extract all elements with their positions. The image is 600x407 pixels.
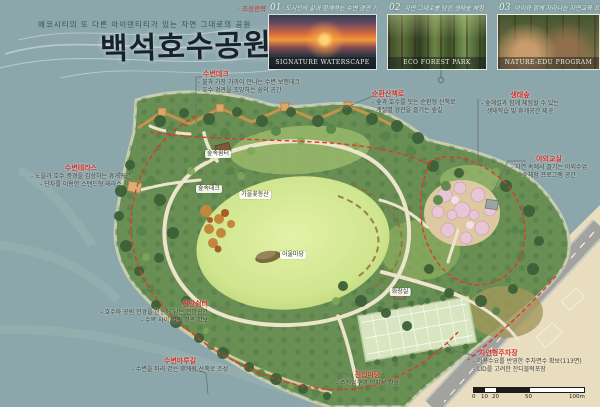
photo3-caption: NATURE-EDU PROGRAM — [498, 57, 599, 69]
callout-eco-forest: 생태숲 - 숲해설과 함께 체험할 수 있는 생태학습 및 휴게공간 제공 — [468, 91, 572, 115]
park-masterplan-poster: 에코시티의 또 다른 아이덴티티가 있는 자연 그대로의 공원 백석호수공원 ·… — [0, 0, 600, 407]
callout-entry-plaza: 진입마당 - 주진입구역 인지성 강화 — [325, 371, 410, 388]
callout-outdoor-class: 야외교실 - 자연 속에서 즐기는 야외수업 숲체험 프로그램 공간 — [505, 155, 593, 179]
label-oul-madang: 어울마당 — [280, 251, 306, 259]
callout-waterside-deck: 수변데크 - 물과 가장 가까이 만나는 수변 보행데크 - 호수 경관을 조망… — [198, 70, 328, 94]
label-forest-deck: 숲속데크 — [196, 185, 222, 193]
photo2-caption: ECO FOREST PARK — [388, 57, 486, 69]
callout-waterside-maru: 수변마루길 - 수변을 따라 걷는 휴게형 산책로 조성 — [120, 357, 240, 374]
label-toilet: 화장실 — [390, 288, 411, 296]
photo-eco-forest-park: ECO FOREST PARK — [387, 14, 487, 70]
photo-nature-edu-program: NATURE-EDU PROGRAM — [497, 14, 600, 70]
page-title: 백석호수공원 — [99, 20, 272, 68]
photo2-heading: 02 자연 그대로를 담은 생태숲 체험 공간 — [389, 3, 487, 13]
outdoor-class-pavilion — [485, 199, 498, 210]
callout-view-rest: 전망쉼터 - 호수와 공원 전경을 한눈에 담는 전망공간 - 수목 사이 열린… — [40, 300, 208, 324]
callout-loop-trail: 순환산책로 - 숲과 호수를 잇는 순환형 산책로 - 계절별 경관을 즐기는 … — [372, 90, 467, 114]
callout-waterside-terrace: 수변테라스 - 노을과 호수 풍경을 감상하는 휴게공간 - 단차를 이용한 스… — [22, 164, 140, 188]
photo-signature-waterscape: SIGNATURE WATERSCAPE — [268, 14, 377, 70]
label-forest-rest: 숲속쉼터 — [205, 150, 231, 158]
photo1-heading: 01 도시민의 삶과 함께하는 수변 경관 거점 — [270, 3, 377, 13]
cherry-blossom-garden — [424, 180, 500, 246]
callout-natural-parking: 자연형주차장 - 이용수요를 반영한 주차면수 확보(113면) - LID를 … — [473, 349, 597, 373]
label-autumn-garden: 가을꽃동산 — [239, 191, 271, 199]
scale-bar: 0 10 20 50 100m — [473, 387, 585, 400]
strategy-note: · 조성전략 — [218, 3, 266, 13]
photo1-caption: SIGNATURE WATERSCAPE — [269, 57, 376, 69]
scale-bar-ticks: 0 10 20 50 100m — [473, 393, 585, 400]
photo3-heading: 03 아이와 함께 자라나는 자연교육 프로그램 — [499, 3, 600, 13]
